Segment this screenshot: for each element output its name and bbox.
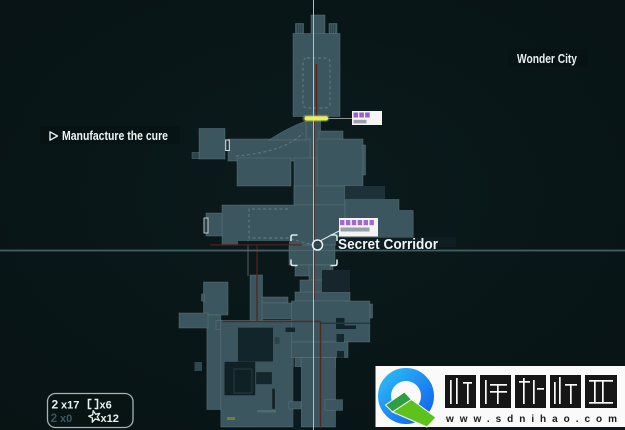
svg-text:x17: x17 [61, 400, 79, 412]
svg-text:x12: x12 [101, 413, 119, 425]
svg-text:Wonder City: Wonder City [517, 52, 577, 66]
svg-text:x0: x0 [60, 413, 72, 425]
svg-text:2: 2 [52, 398, 59, 412]
svg-text:2: 2 [51, 411, 58, 425]
svg-text:Manufacture the cure: Manufacture the cure [62, 129, 168, 143]
svg-text:x6: x6 [100, 400, 112, 412]
svg-text:Secret Corridor: Secret Corridor [338, 237, 438, 253]
